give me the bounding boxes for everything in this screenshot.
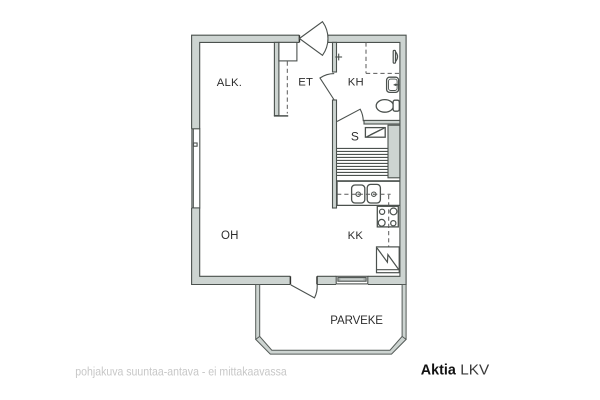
svg-text:S: S xyxy=(351,129,359,143)
svg-text:PARVEKE: PARVEKE xyxy=(330,315,383,327)
svg-text:ET: ET xyxy=(298,77,313,89)
svg-text:KK: KK xyxy=(348,230,364,242)
svg-text:LKV: LKV xyxy=(460,362,490,379)
svg-text:ALK.: ALK. xyxy=(217,77,242,89)
svg-text:Aktia: Aktia xyxy=(421,362,457,379)
svg-text:KH: KH xyxy=(348,77,364,89)
svg-text:pohjakuva suuntaa-antava - ei: pohjakuva suuntaa-antava - ei mittakaava… xyxy=(75,365,287,379)
svg-text:OH: OH xyxy=(221,230,239,242)
